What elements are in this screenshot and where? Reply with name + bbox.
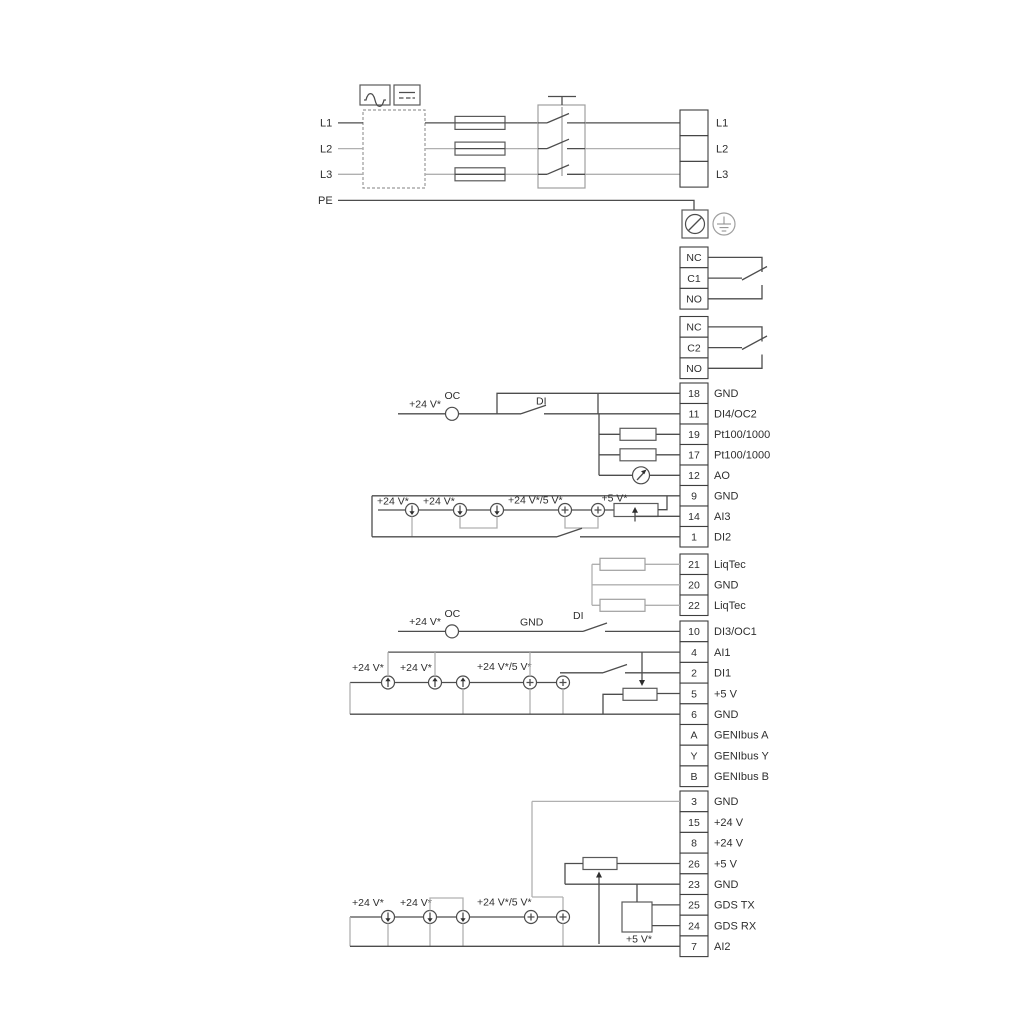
io2-num-6: 6 xyxy=(691,709,697,721)
annotation-5v: +5 V* xyxy=(626,934,652,946)
io1-num-19: 19 xyxy=(688,429,700,441)
io3-label-23: GND xyxy=(714,879,739,891)
plus-source-icon xyxy=(557,911,570,924)
liq-label-20: GND xyxy=(714,580,739,592)
io2-label-y: GENIbus Y xyxy=(714,750,769,762)
current-source-icon xyxy=(382,676,395,689)
annotation-oc: OC xyxy=(445,608,461,620)
earth-ground-icon xyxy=(713,213,735,235)
relay2-nc: NC xyxy=(686,322,702,334)
relay1-no: NO xyxy=(686,294,702,306)
io2-label-2: DI1 xyxy=(714,668,731,680)
current-source-icon xyxy=(491,504,504,517)
io1-num-1: 1 xyxy=(691,532,697,544)
current-source-icon xyxy=(429,676,442,689)
io2-num-10: 10 xyxy=(688,626,700,638)
main-switch xyxy=(538,97,585,189)
annotation-24v: +24 V* xyxy=(352,662,384,674)
io1-label-17: Pt100/1000 xyxy=(714,450,770,462)
io1-num-12: 12 xyxy=(688,470,700,482)
io2-num-2: 2 xyxy=(691,668,697,680)
mains-out-label-l2: L2 xyxy=(716,143,728,155)
annotation-24v: +24 V* xyxy=(409,616,441,628)
mains-out-label-l3: L3 xyxy=(716,169,728,181)
liq-num-21: 21 xyxy=(688,559,700,571)
io1-label-11: DI4/OC2 xyxy=(714,409,757,421)
chain-brackets xyxy=(412,517,598,537)
relay1-c1: C1 xyxy=(687,273,701,285)
annotation-24v: +24 V* xyxy=(400,897,432,909)
io3-label-15: +24 V xyxy=(714,817,744,829)
mains-in-label-l3: L3 xyxy=(320,169,332,181)
io2-label-6: GND xyxy=(714,709,739,721)
annotation-di: DI xyxy=(573,610,584,622)
io1-label-18: GND xyxy=(714,388,739,400)
io1-label-19: Pt100/1000 xyxy=(714,429,770,441)
wire-gnd3 xyxy=(532,801,680,910)
io3-label-26: +5 V xyxy=(714,858,738,870)
mains-input-section: L1 L2 L3 PE xyxy=(318,85,735,238)
current-source-icon xyxy=(457,911,470,924)
plus-source-icon xyxy=(557,676,570,689)
io2-label-4: AI1 xyxy=(714,647,731,659)
mains-in-label-l2: L2 xyxy=(320,143,332,155)
mains-in-label-pe: PE xyxy=(318,195,333,207)
open-collector-icon xyxy=(446,625,459,638)
wire-pe xyxy=(338,200,694,210)
relay1-block: NC C1 NO xyxy=(680,247,767,309)
io3-num-26: 26 xyxy=(688,858,700,870)
io1-num-11: 11 xyxy=(689,409,700,421)
wiring-diagram: L1 L2 L3 PE xyxy=(0,0,1024,1024)
annotation-24v: +24 V* xyxy=(352,897,384,909)
ai1-wiper-arrow xyxy=(639,680,645,686)
current-source-icon xyxy=(454,504,467,517)
io-block-1-wiring: +24 V* OC DI +24 V* +24 V* +24 V*/5 V* +… xyxy=(372,390,680,537)
gds-sensor-box xyxy=(622,884,680,932)
plus-source-icon xyxy=(525,911,538,924)
io1-num-14: 14 xyxy=(688,511,700,523)
annotation-oc: OC xyxy=(445,390,461,402)
io-block-2: 10 DI3/OC1 4 AI1 2 DI1 5 +5 V 6 GND A GE… xyxy=(680,621,769,787)
io2-label-b: GENIbus B xyxy=(714,771,769,783)
current-source-icon xyxy=(406,504,419,517)
io-block-3-wiring: +24 V* +24 V* +24 V*/5 V* +5 V* xyxy=(350,801,680,946)
liqtec-block: 21 LiqTec 20 GND 22 LiqTec xyxy=(592,554,746,616)
relay1-contact-wiring xyxy=(708,257,767,298)
liq-label-22: LiqTec xyxy=(714,600,746,612)
plus-source-icon xyxy=(524,676,537,689)
current-source-icon xyxy=(424,911,437,924)
plus-source-icon xyxy=(559,504,572,517)
io2-num-y: Y xyxy=(690,750,697,762)
current-source-icon xyxy=(457,676,470,689)
io2-label-a: GENIbus A xyxy=(714,730,769,742)
fuse-l2 xyxy=(455,142,505,155)
liq-label-21: LiqTec xyxy=(714,559,746,571)
io2-num-4: 4 xyxy=(691,647,697,659)
io3-num-15: 15 xyxy=(688,817,700,829)
io1-num-17: 17 xyxy=(688,450,700,462)
annotation-24v: +24 V* xyxy=(409,399,441,411)
io3-label-8: +24 V xyxy=(714,838,744,850)
io1-label-14: AI3 xyxy=(714,511,731,523)
pt100-resistor-1 xyxy=(599,428,680,440)
annotation-24v-5v: +24 V*/5 V* xyxy=(477,661,532,673)
io3-label-25: GDS TX xyxy=(714,900,755,912)
io3-label-24: GDS RX xyxy=(714,920,757,932)
mains-in-label-l1: L1 xyxy=(320,118,332,130)
liqtec-sensor-wiring xyxy=(592,558,680,611)
fuse-l1 xyxy=(455,116,505,129)
io3-num-24: 24 xyxy=(688,920,700,932)
io1-num-9: 9 xyxy=(691,491,697,503)
relay2-contact-wiring xyxy=(708,327,767,368)
plus-source-icon xyxy=(592,504,605,517)
io3-label-7: AI2 xyxy=(714,941,731,953)
annotation-24v-5v: +24 V*/5 V* xyxy=(477,897,532,909)
io1-num-18: 18 xyxy=(688,388,700,400)
annotation-24v-5v: +24 V*/5 V* xyxy=(508,495,563,507)
io3-num-7: 7 xyxy=(691,941,697,953)
io-block-2-wiring: +24 V* OC GND DI +24 V* +24 V* +24 V*/5 … xyxy=(350,608,680,714)
io-block-3: 3 GND 15 +24 V 8 +24 V 26 +5 V 23 GND 25… xyxy=(680,791,757,957)
liq-num-20: 20 xyxy=(688,580,700,592)
io3-label-3: GND xyxy=(714,796,739,808)
current-source-icon xyxy=(382,911,395,924)
io2-num-a: A xyxy=(690,730,697,742)
io1-label-9: GND xyxy=(714,491,739,503)
io-block-1: 18 GND 11 DI4/OC2 19 Pt100/1000 17 Pt100… xyxy=(680,383,770,547)
io3-num-3: 3 xyxy=(691,796,697,808)
open-collector-icon xyxy=(446,407,459,420)
relay1-nc: NC xyxy=(686,252,702,264)
relay2-no: NO xyxy=(686,363,702,375)
di-box-and-switch xyxy=(497,393,680,414)
pe-connection xyxy=(338,200,735,238)
io1-label-1: DI2 xyxy=(714,532,731,544)
io1-label-12: AO xyxy=(714,470,730,482)
annotation-24v: +24 V* xyxy=(423,496,455,508)
annotation-gnd: GND xyxy=(520,617,544,629)
relay2-block: NC C2 NO xyxy=(680,317,767,379)
pt100-resistor-2 xyxy=(599,449,680,461)
wiring-diagram-page: L1 L2 L3 PE xyxy=(0,0,1024,1024)
io3-num-23: 23 xyxy=(688,879,700,891)
io3-num-8: 8 xyxy=(691,838,697,850)
liqtec-resistor-1 xyxy=(600,558,645,570)
potentiometer xyxy=(603,688,680,714)
io2-num-5: 5 xyxy=(691,688,697,700)
meter-icon xyxy=(599,467,680,484)
dc-icon-frame xyxy=(394,85,420,105)
relay2-c2: C2 xyxy=(687,342,701,354)
io3-num-25: 25 xyxy=(688,900,700,912)
mains-terminal-block: L1 L2 L3 xyxy=(680,110,728,187)
wire-di1-switch xyxy=(560,665,680,673)
screw-terminal-icon xyxy=(686,215,705,234)
fuse-l3 xyxy=(455,168,505,181)
mains-out-label-l1: L1 xyxy=(716,118,728,130)
io2-num-b: B xyxy=(690,771,697,783)
liq-num-22: 22 xyxy=(688,600,700,612)
annotation-24v: +24 V* xyxy=(400,662,432,674)
liqtec-resistor-2 xyxy=(600,599,645,611)
annotation-5v: +5 V* xyxy=(602,493,628,505)
emc-filter-box xyxy=(363,110,425,188)
io2-label-10: DI3/OC1 xyxy=(714,626,757,638)
annotation-24v: +24 V* xyxy=(377,496,409,508)
io2-label-5: +5 V xyxy=(714,688,738,700)
